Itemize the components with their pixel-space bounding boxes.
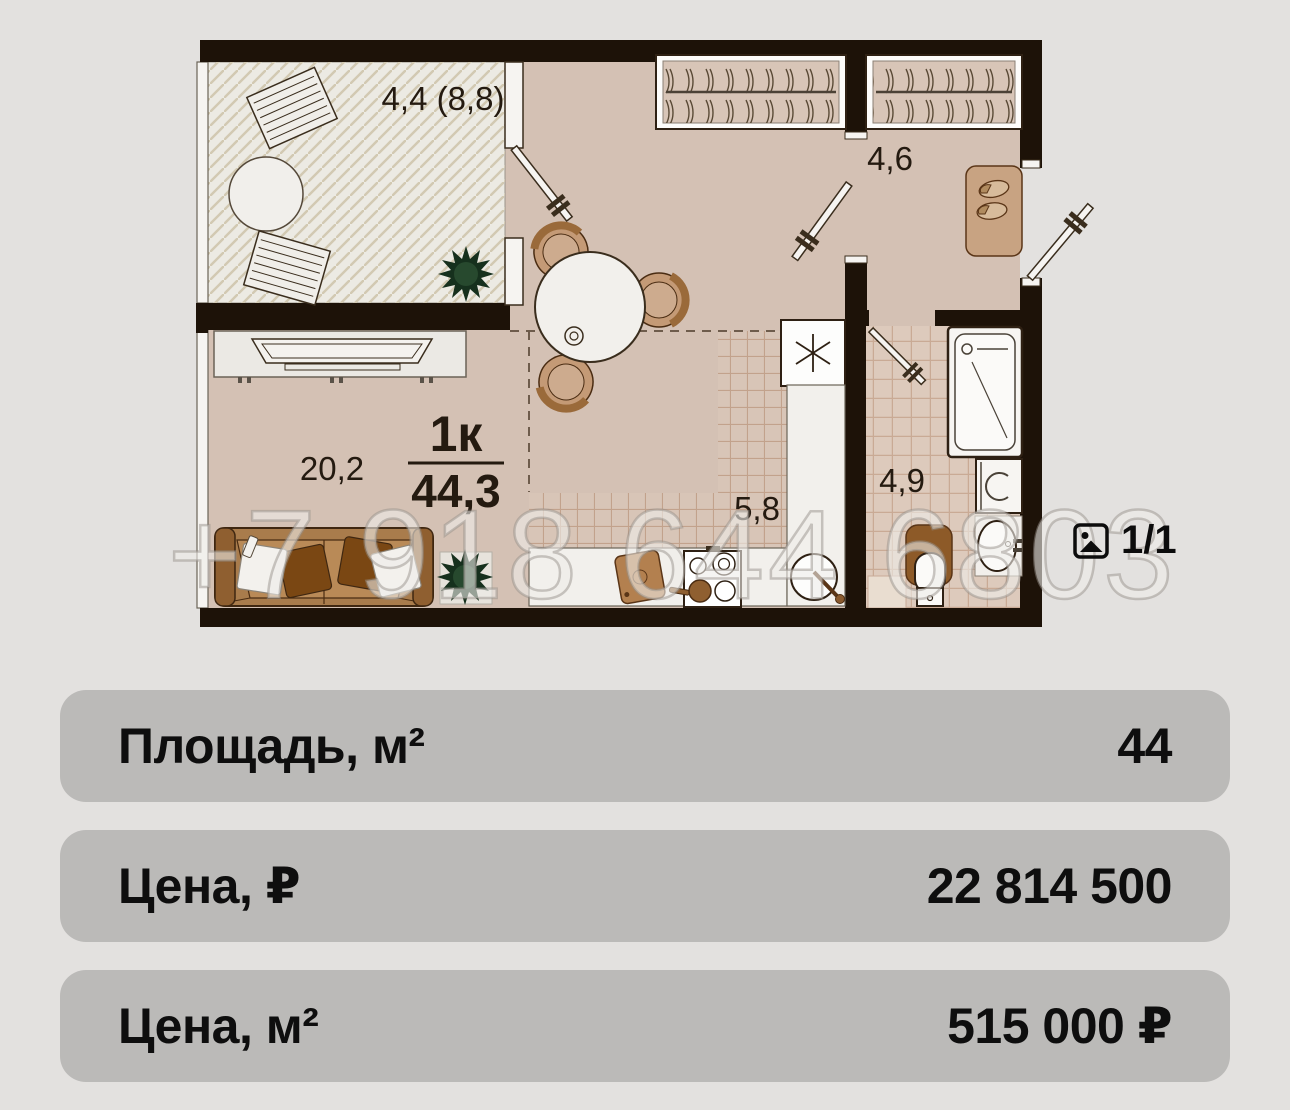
price-per-m2-row: Цена, м² 515 000 ₽ xyxy=(60,970,1230,1082)
wardrobe-hall xyxy=(866,55,1022,129)
price-row-value: 22 814 500 xyxy=(927,857,1172,915)
sofa xyxy=(215,528,433,606)
details-panel: Площадь, м² 44 Цена, ₽ 22 814 500 Цена, … xyxy=(60,690,1230,1110)
photo-icon xyxy=(1072,522,1110,560)
price-per-m2-row-value: 515 000 ₽ xyxy=(947,997,1172,1055)
bathtub xyxy=(948,327,1022,457)
price-row: Цена, ₽ 22 814 500 xyxy=(60,830,1230,942)
wardrobe-main xyxy=(656,55,846,129)
window-strips xyxy=(197,62,208,608)
shoe-mat xyxy=(966,166,1022,256)
cutting-board xyxy=(614,550,666,605)
fridge xyxy=(781,320,845,386)
price-row-label: Цена, ₽ xyxy=(118,857,300,915)
photo-counter-text: 1/1 xyxy=(1121,518,1177,563)
kitchen-area-label: 5,8 xyxy=(734,490,780,527)
washing-machine xyxy=(976,459,1022,513)
total-area-label: 44,3 xyxy=(411,465,501,517)
hallway-area-label: 4,6 xyxy=(867,140,913,177)
balcony-table xyxy=(229,157,303,231)
living-plant xyxy=(437,549,493,605)
price-per-m2-row-label: Цена, м² xyxy=(118,997,318,1055)
area-row-value: 44 xyxy=(1117,717,1172,775)
apartment-type-label: 1к xyxy=(430,406,484,462)
photo-counter-badge: 1/1 xyxy=(1072,518,1177,563)
living-area-label: 20,2 xyxy=(300,450,364,487)
bathroom-area-label: 4,9 xyxy=(879,462,925,499)
bathroom-sink xyxy=(975,516,1022,576)
tv-stand xyxy=(214,331,466,383)
entrance-door xyxy=(1022,199,1099,285)
area-row: Площадь, м² 44 xyxy=(60,690,1230,802)
balcony-area-label: 4,4 (8,8) xyxy=(382,80,505,117)
area-row-label: Площадь, м² xyxy=(118,717,425,775)
